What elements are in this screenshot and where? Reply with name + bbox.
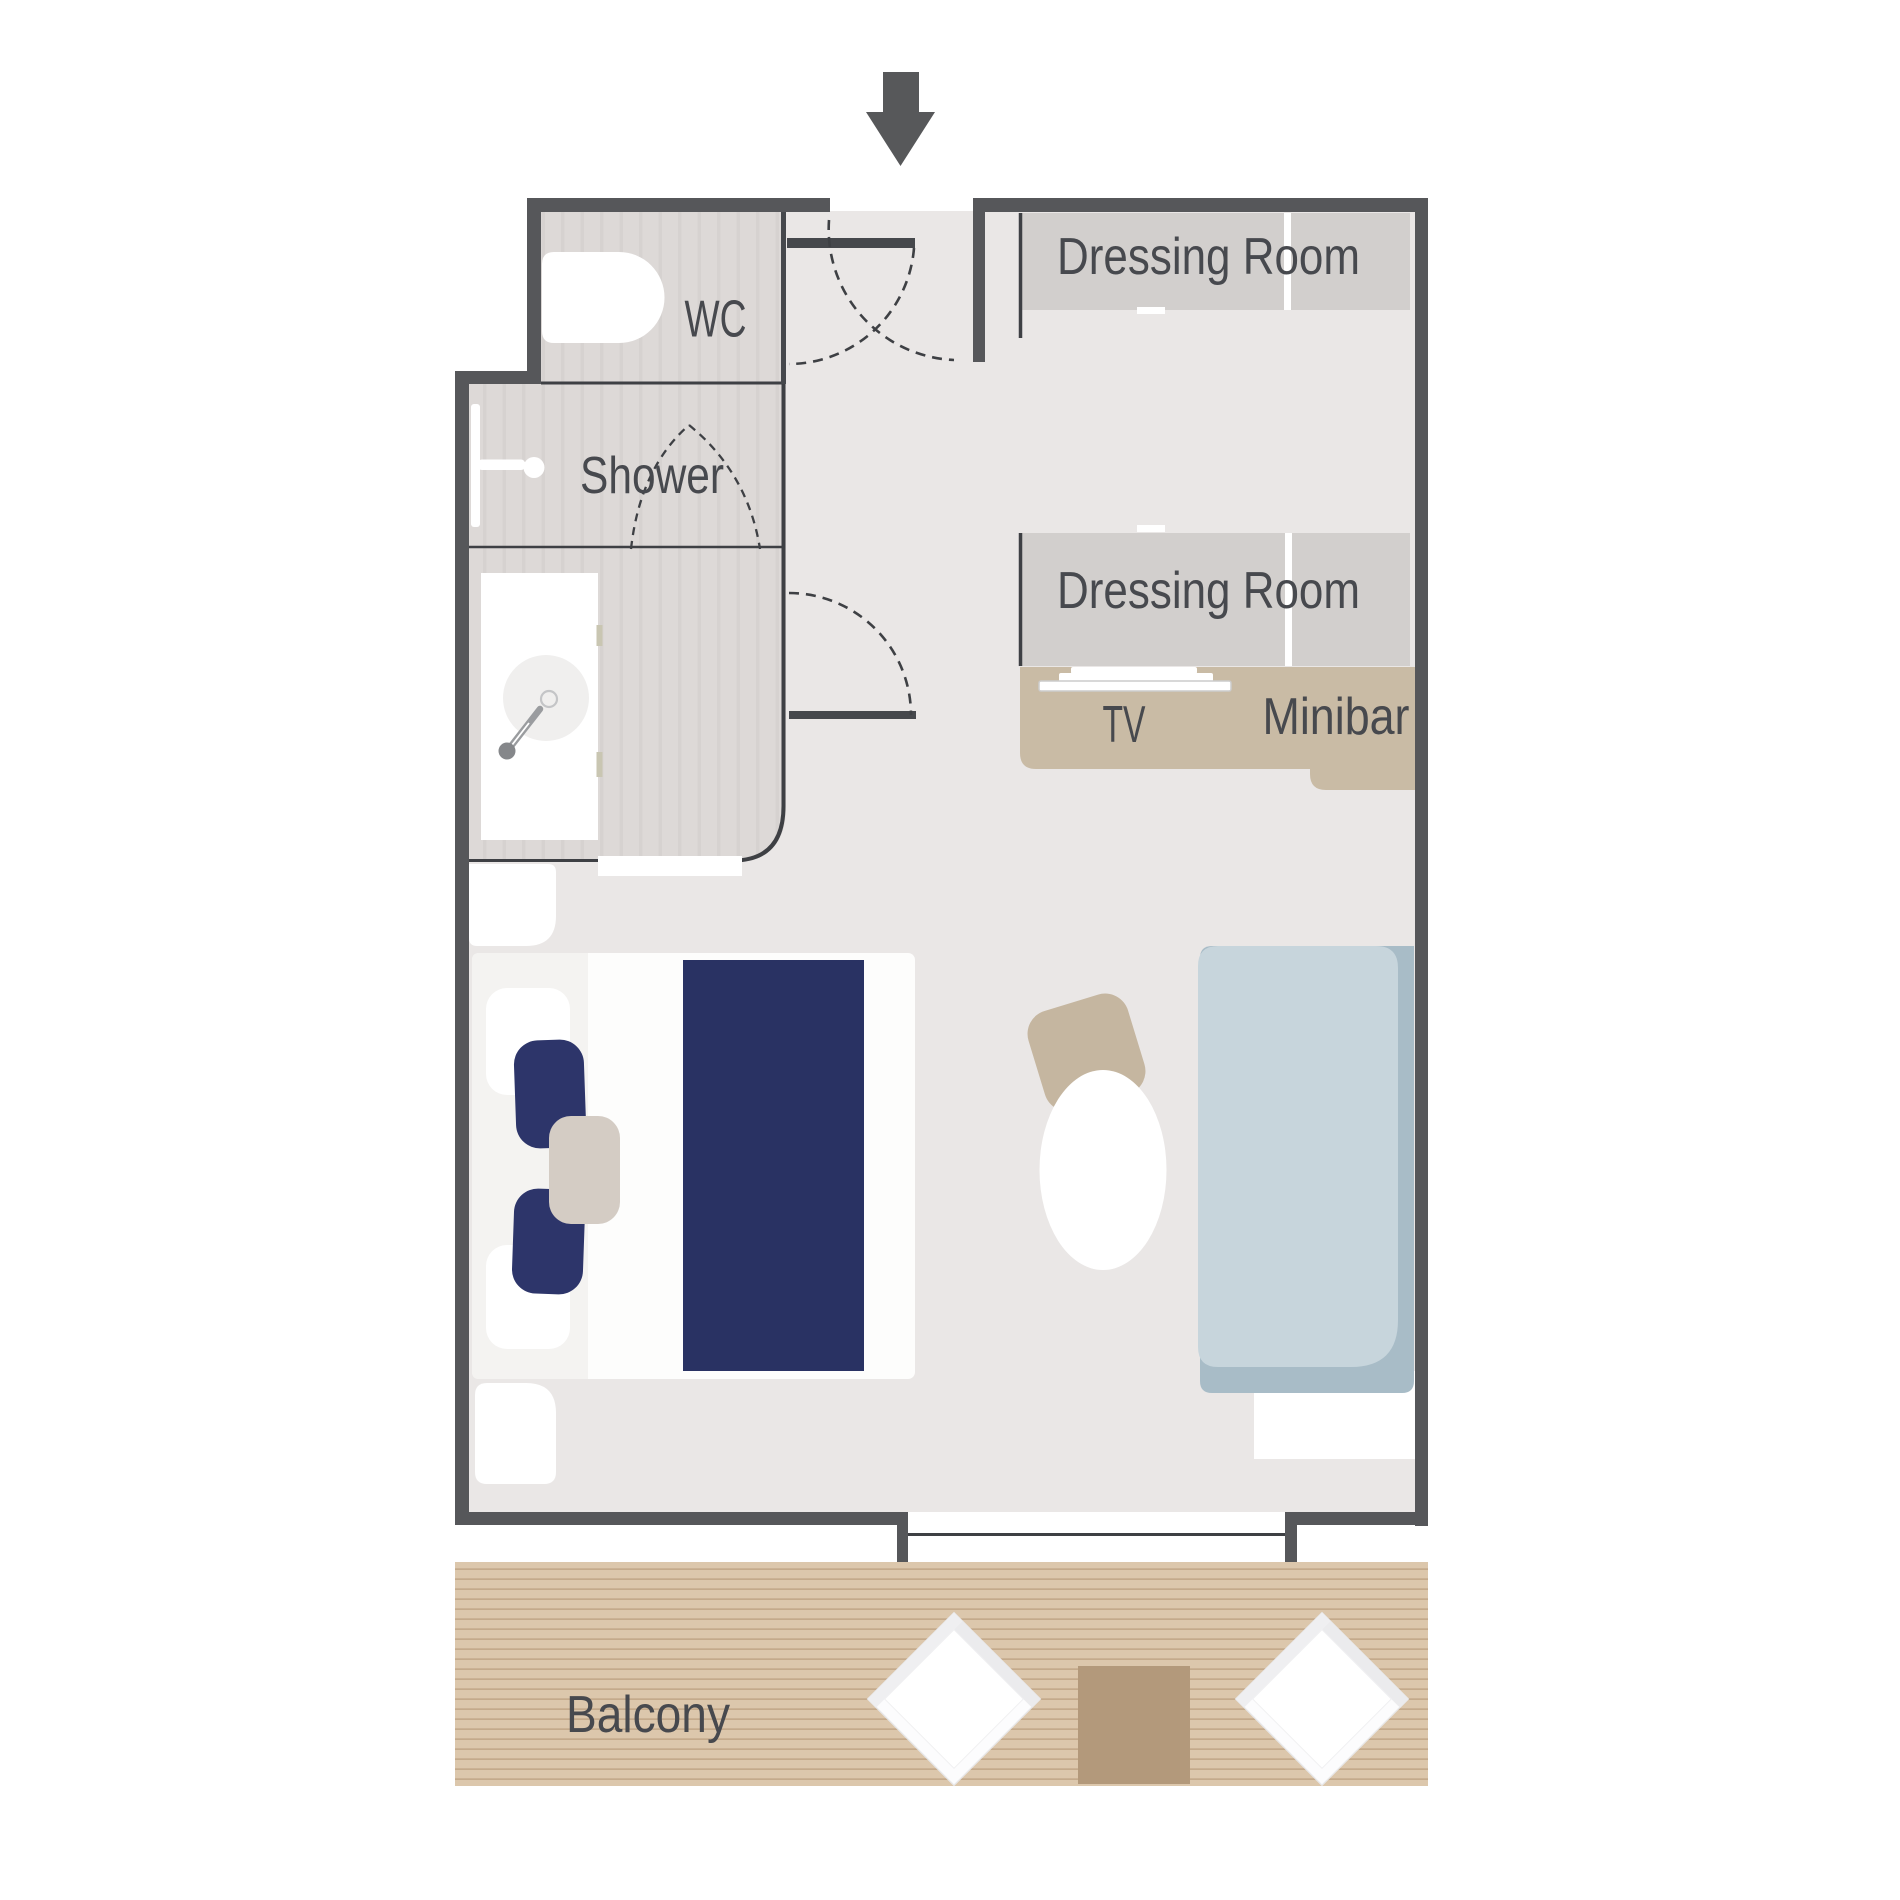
- svg-text:TV: TV: [1103, 696, 1146, 754]
- svg-text:Balcony: Balcony: [566, 1686, 731, 1744]
- svg-text:Dressing Room: Dressing Room: [1057, 228, 1360, 286]
- svg-text:Minibar: Minibar: [1263, 688, 1410, 746]
- svg-text:WC: WC: [685, 291, 747, 349]
- svg-text:Shower: Shower: [580, 447, 724, 505]
- svg-text:Dressing Room: Dressing Room: [1057, 562, 1360, 620]
